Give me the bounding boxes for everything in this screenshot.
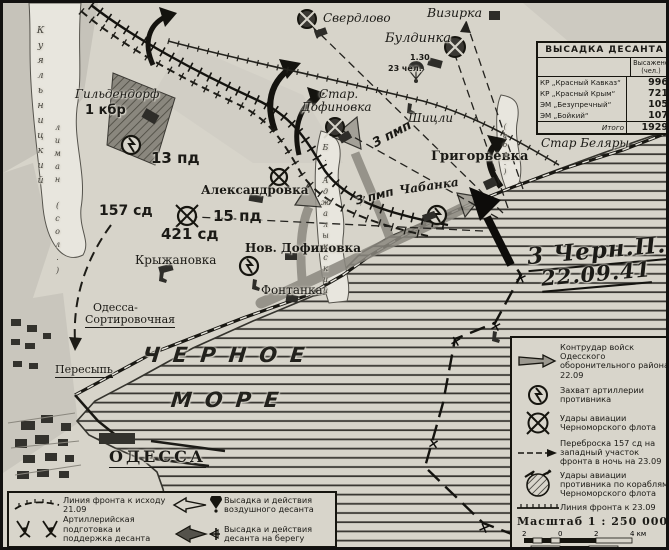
legend-label: Контрудар войск Одесского оборонительног… bbox=[560, 343, 669, 380]
legend-left: Линия фронта к исходу 21.09 Артиллерийск… bbox=[7, 491, 337, 548]
ship-count: 107 bbox=[626, 110, 669, 121]
label-kryzhanovka: Крыжановка bbox=[135, 253, 216, 267]
label-15pd: 15 пд bbox=[213, 207, 262, 225]
label-peresyp: Пересыпь bbox=[55, 363, 113, 378]
label-157sd: 157 сд bbox=[99, 203, 153, 219]
artillery-capture-icon bbox=[516, 383, 560, 407]
label-fontanka: Фонтанка bbox=[261, 283, 323, 297]
ship-count: 996 bbox=[626, 77, 669, 88]
ship-name: ЭМ „Безупречный“ bbox=[538, 99, 626, 110]
svg-text:4 км: 4 км bbox=[630, 530, 646, 538]
landing-table: ВЫСАДКА ДЕСАНТА Высажено (чел.) КР „Крас… bbox=[536, 41, 669, 135]
label-odessa-sort-2: Сортировочная bbox=[85, 313, 175, 328]
label-odessa: ОДЕССА bbox=[109, 447, 206, 468]
label-vizirka: Визирка bbox=[427, 5, 482, 20]
ship-count: 105 bbox=[626, 99, 669, 110]
total-label: Итого bbox=[538, 122, 626, 133]
label-13pd: 13 пд bbox=[151, 149, 200, 167]
legend-right: Контрудар войск Одесского оборонительног… bbox=[510, 336, 669, 550]
scale-bar-graphic: 2 0 2 4 км 1 0 1 2 мили bbox=[518, 529, 668, 550]
navy-aviation-strike-icon bbox=[516, 410, 560, 436]
scale-title: Масштаб 1 : 250 000 bbox=[516, 515, 669, 528]
svg-text:2: 2 bbox=[522, 530, 526, 538]
label-adzhalyk-liman: Б. Аджалыкский bbox=[321, 143, 330, 293]
ship-name: КР „Красный Крым“ bbox=[538, 88, 626, 99]
legend-item: Высадка и действия воздушного десанта bbox=[172, 496, 333, 514]
label-star-belyary: Стар Беляры bbox=[541, 136, 629, 150]
legend-label: Артиллерийская подготовка и поддержка де… bbox=[63, 515, 172, 543]
legend-label: Удары авиации Черноморского флота bbox=[560, 414, 669, 432]
label-aleksandrovka: Александровка bbox=[201, 183, 309, 197]
table-row: КР „Красный Кавказ“ 996 bbox=[538, 77, 669, 88]
legend-item: Высадка и действия десанта на берегу bbox=[172, 525, 333, 543]
label-sverdlovo: Свердлово bbox=[323, 11, 391, 25]
table-row: КР „Красный Крым“ 721 bbox=[538, 88, 669, 99]
scale-bar: 2 0 2 4 км 1 0 1 2 мили bbox=[516, 529, 669, 550]
table-row: ЭМ „Бойкий“ 107 bbox=[538, 110, 669, 121]
legend-item: Артиллерийская подготовка и поддержка де… bbox=[11, 515, 172, 543]
label-kuyalnik-liman: Куяльницкий bbox=[35, 25, 46, 235]
legend-label: Высадка и действия воздушного десанта bbox=[224, 496, 333, 514]
label-star-dofinovka-1: Стар. bbox=[319, 87, 358, 101]
table-total-row: Итого 1929 bbox=[538, 121, 669, 133]
label-black-sea-2: МОРЕ bbox=[170, 388, 293, 412]
table-value-header: Высажено (чел.) bbox=[630, 58, 669, 76]
label-nov-dofinovka: Нов. Дофиновка bbox=[245, 241, 361, 255]
legend-item: Захват артиллерии противника bbox=[516, 383, 669, 407]
vizirka-mark bbox=[489, 11, 500, 20]
label-kuyalnik-liman-2: лиман (сол.) bbox=[53, 123, 62, 253]
counterattack-arrow-icon bbox=[516, 351, 560, 371]
svg-text:2: 2 bbox=[594, 530, 598, 538]
map-canvas: × × × × × bbox=[0, 0, 669, 550]
ship-name: ЭМ „Бойкий“ bbox=[538, 110, 626, 121]
legend-item: Удары авиации противника по кораблям Чер… bbox=[516, 469, 669, 499]
table-row: ЭМ „Безупречный“ 105 bbox=[538, 99, 669, 110]
front-line-23-09-icon bbox=[516, 502, 560, 512]
total-value: 1929 bbox=[626, 122, 669, 133]
legend-label: Линия фронта к 23.09 bbox=[560, 503, 656, 512]
label-airborne-men: 23 чел. bbox=[388, 64, 422, 73]
airborne-landing-icon bbox=[172, 496, 224, 514]
shore-landing-icon bbox=[172, 525, 224, 543]
label-421sd: 421 сд bbox=[161, 225, 219, 243]
label-star-dofinovka-2: Дофиновка bbox=[301, 100, 372, 114]
svg-text:0: 0 bbox=[558, 530, 562, 538]
ship-name: КР „Красный Кавказ“ bbox=[538, 77, 626, 88]
legend-item: Линия фронта к 23.09 bbox=[516, 502, 669, 512]
label-black-sea-1: ЧЕРНОЕ bbox=[142, 343, 319, 367]
landing-table-title: ВЫСАДКА ДЕСАНТА bbox=[538, 43, 669, 58]
label-buldinka: Булдинка bbox=[385, 31, 451, 46]
legend-label: Линия фронта к исходу 21.09 bbox=[63, 496, 172, 514]
legend-item: Контрудар войск Одесского оборонительног… bbox=[516, 343, 669, 380]
legend-label: Захват артиллерии противника bbox=[560, 386, 669, 404]
legend-item: Удары авиации Черноморского флота bbox=[516, 410, 669, 436]
label-shitsli: Шицли bbox=[408, 111, 453, 125]
enemy-aviation-strike-icon bbox=[516, 469, 560, 499]
label-small-liman-sol: (сол.) bbox=[501, 123, 509, 183]
legend-label: Удары авиации противника по кораблям Чер… bbox=[560, 471, 669, 499]
legend-item: Линия фронта к исходу 21.09 bbox=[11, 496, 172, 514]
front-line-21-09-icon bbox=[11, 497, 63, 513]
label-airborne-time: 1.30 bbox=[410, 53, 430, 62]
legend-label: Переброска 157 сд на западный участок фр… bbox=[560, 439, 669, 467]
label-grigoryevka: Григорьевка bbox=[431, 149, 528, 164]
table-ship-column bbox=[538, 58, 630, 76]
label-1kbr: 1 кбр bbox=[85, 103, 126, 118]
legend-label: Высадка и действия десанта на берегу bbox=[224, 525, 333, 543]
ship-count: 721 bbox=[626, 88, 669, 99]
legend-item: Переброска 157 сд на западный участок фр… bbox=[516, 439, 669, 467]
artillery-support-icon bbox=[11, 519, 63, 539]
label-gildendorf: Гильдендорф bbox=[75, 87, 159, 101]
troop-transfer-icon bbox=[516, 447, 560, 459]
